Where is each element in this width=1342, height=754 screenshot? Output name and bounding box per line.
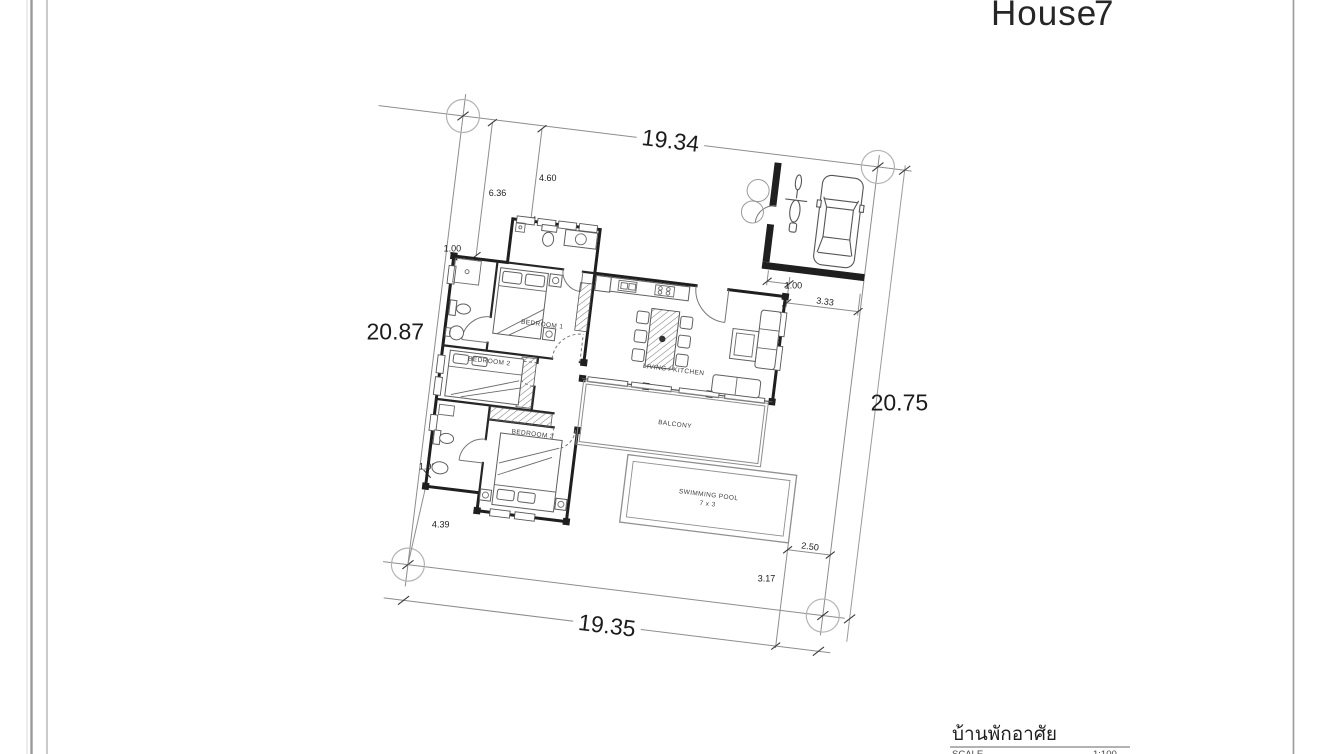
sheet-border	[27, 0, 1294, 754]
plant-icon	[740, 200, 765, 225]
drawing-sheet: House 7 บ้านพักอาศัย SCALE 1:100	[0, 0, 1342, 754]
entry-door	[692, 286, 729, 323]
dim-site-left: 20.87	[366, 318, 424, 344]
swimming-pool	[620, 455, 797, 543]
sofa-set	[711, 305, 781, 400]
bedroom1-door	[552, 331, 583, 362]
dim-setback-nw: 6.36	[489, 188, 507, 198]
dim-site-right: 20.75	[871, 389, 929, 415]
dim-wall-nw: 1.00	[444, 244, 462, 254]
dim-pool-south: 3.17	[758, 573, 776, 583]
dim-bath-top: 4.60	[539, 173, 557, 183]
car-icon	[810, 174, 868, 269]
bath2-door	[462, 314, 491, 343]
label-pool-size: 7 x 3	[699, 500, 716, 509]
dim-pool-east: 2.50	[801, 540, 820, 552]
floor-plan: 19.34 19.35 20.87 20.75 6.36 4.60 1.00 1…	[317, 84, 960, 675]
title-block: บ้านพักอาศัย SCALE 1:100	[950, 724, 1130, 754]
scale-value: 1:100	[1093, 749, 1117, 754]
carport	[735, 159, 877, 281]
wall-posts	[420, 252, 790, 549]
label-balcony: BALCONY	[658, 419, 693, 430]
motorcycle-icon	[781, 174, 810, 234]
floor-plan-canvas: House 7 บ้านพักอาศัย SCALE 1:100	[0, 0, 1342, 754]
dim-carport-width: 3.33	[816, 295, 835, 307]
scale-label: SCALE	[952, 749, 983, 754]
site-boundary	[319, 84, 915, 661]
bedroom1-furniture	[493, 268, 563, 341]
sheet-title-number: 7	[1094, 0, 1114, 33]
bath3-door	[459, 436, 486, 463]
dim-carport-gate: 1.00	[785, 281, 803, 291]
dining-set	[631, 307, 694, 371]
bedroom3-furniture	[479, 431, 574, 513]
sheet-title: House	[991, 0, 1097, 33]
plant-icon	[746, 178, 771, 203]
dim-setback-sw: 4.39	[432, 519, 450, 529]
project-name: บ้านพักอาศัย	[952, 724, 1057, 745]
